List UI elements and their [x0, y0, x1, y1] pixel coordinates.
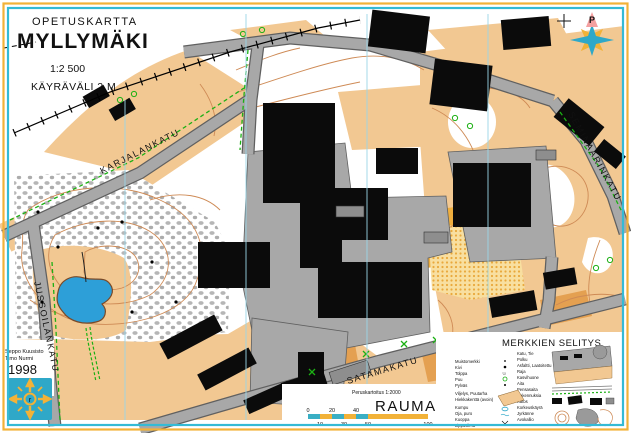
north-label: P — [589, 15, 595, 25]
scale-label-40: 40 — [353, 408, 359, 414]
club-logo: r — [8, 378, 52, 420]
base-map-note: Peruskartoitus 1:2000 — [352, 390, 401, 396]
legend-item: Pylväs — [455, 383, 467, 388]
legend-item: Kivi — [455, 365, 462, 370]
city-name: RAUMA — [375, 398, 437, 415]
map-scale: 1:2 500 — [50, 63, 85, 75]
scale-label-0: 0 — [306, 408, 309, 414]
legend-item: Polku — [517, 357, 528, 362]
legend-item: Puu — [455, 377, 463, 382]
legend-item: Hiekkakenttä (avoin) — [455, 397, 494, 402]
map-page: OPETUSKARTTA MYLLYMÄKI 1:2 500 KÄYRÄVÄLI… — [0, 0, 631, 433]
credit-year: 1998 — [8, 362, 37, 377]
scale-label-20: 20 — [329, 408, 335, 414]
legend-item: Asfaltti, Laatoitettu — [517, 363, 552, 368]
legend-item: Korkeuskäyrä — [517, 405, 543, 410]
map-category: OPETUSKARTTA — [32, 16, 138, 28]
legend-item: Aita — [517, 381, 525, 386]
map-title: MYLLYMÄKI — [17, 30, 149, 53]
legend-item: Katu, Tie — [517, 351, 534, 356]
legend-item: Viljelys, Puutarha — [455, 391, 488, 396]
legend-item: Jyrkänne — [517, 411, 535, 416]
legend-item: Raja — [517, 369, 526, 374]
legend-item: Oja, puro — [455, 411, 473, 416]
credit-line1: Seppo Kuusisto — [5, 349, 44, 355]
legend-item: Muistomerkki — [455, 359, 480, 364]
legend-title: MERKKIEN SELITYS — [502, 338, 601, 349]
legend-item: Avokallio — [517, 417, 534, 422]
map-canvas: OPETUSKARTTA MYLLYMÄKI 1:2 500 KÄYRÄVÄLI… — [0, 0, 631, 433]
legend-item: Tolppa — [455, 371, 468, 376]
contour-interval: KÄYRÄVÄLI 2 M — [31, 81, 116, 93]
legend-item: Kumpu — [455, 405, 469, 410]
legend-item: Kasvihuone — [517, 375, 540, 380]
legend-item: Pensasaita — [517, 387, 538, 392]
legend-item: Kuoppa — [455, 417, 470, 422]
